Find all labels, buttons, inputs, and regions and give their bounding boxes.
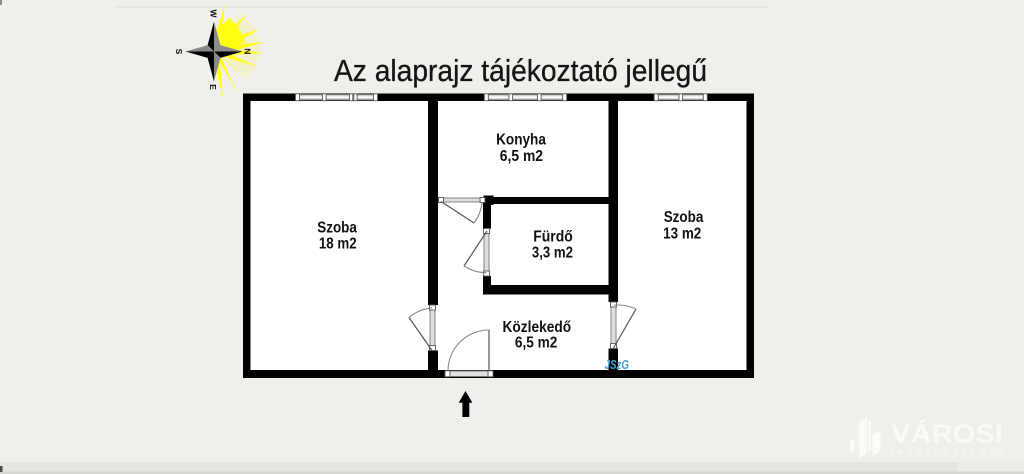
svg-text:13 m2: 13 m2: [663, 225, 701, 242]
svg-text:3,3 m2: 3,3 m2: [532, 244, 573, 261]
svg-text:Szoba: Szoba: [317, 220, 357, 237]
svg-text:Az alaprajz tájékoztató jelleg: Az alaprajz tájékoztató jellegű: [334, 54, 707, 88]
svg-text:Konyha: Konyha: [496, 132, 546, 149]
svg-text:VÁROSI: VÁROSI: [891, 419, 1003, 449]
svg-text:JSzG: JSzG: [605, 357, 630, 372]
svg-text:18 m2: 18 m2: [319, 235, 357, 252]
svg-text:W: W: [209, 9, 219, 18]
svg-text:6,5 m2: 6,5 m2: [515, 334, 558, 351]
svg-text:S: S: [174, 49, 184, 55]
svg-text:E: E: [208, 84, 218, 90]
svg-text:6,5 m2: 6,5 m2: [500, 148, 543, 165]
svg-text:Szoba: Szoba: [664, 209, 704, 226]
svg-text:Fürdő: Fürdő: [533, 229, 573, 246]
svg-text:N: N: [243, 48, 253, 54]
